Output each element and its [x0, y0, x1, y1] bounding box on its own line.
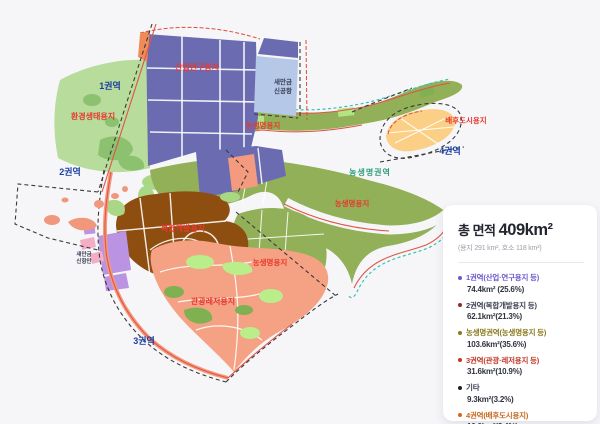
total-area-title-prefix: 총 면적	[458, 223, 499, 238]
legend-value: 31.6km²(10.9%)	[458, 367, 584, 376]
agri-top-label: 농생명용지	[246, 120, 281, 130]
legend-item-zone1: 1권역(산업·연구용지 등) 74.4km² (25.6%)	[458, 272, 584, 294]
complex-label: 복합개발용지	[161, 223, 205, 233]
zone1-bullet-icon	[458, 276, 462, 280]
airport-label-line1: 새만금	[274, 77, 292, 86]
zone3-bullet-icon	[458, 358, 462, 362]
tourism-zone-shape	[151, 240, 329, 372]
total-area-value: 409km²	[499, 221, 553, 239]
etc-bullet-icon	[458, 386, 462, 390]
legend-label: 2권역(복합개발용지 등)	[466, 300, 537, 311]
area-breakdown-note: (용지 291 km², 호소 118 km²)	[458, 243, 584, 253]
legend-label: 기타	[466, 382, 479, 393]
legend-item-etc: 기타 9.3km²(3.2%)	[458, 382, 584, 404]
zone2-label: 2권역	[59, 166, 81, 177]
zone4-label: 4권역	[439, 145, 461, 156]
legend-value: 74.4km² (25.6%)	[458, 285, 584, 294]
agri-zone-label: 농생명권역	[349, 167, 391, 177]
zone4-bullet-icon	[458, 413, 462, 417]
legend-item-zone2: 2권역(복합개발용지 등) 62.1km²(21.3%)	[458, 300, 584, 322]
hinterland-label: 배후도시용지	[445, 115, 486, 125]
industrial-label: 산업연구용지	[175, 62, 219, 72]
port-label-line1: 새만금	[76, 250, 91, 258]
area-summary-card: 총 면적 409km² (용지 291 km², 호소 118 km²) 1권역…	[443, 205, 597, 421]
zone2-bullet-icon	[458, 303, 462, 307]
legend-label: 4권역(배후도시용지)	[466, 410, 528, 421]
legend-label: 1권역(산업·연구용지 등)	[466, 272, 539, 283]
legend-value: 9.3km²(3.2%)	[458, 395, 584, 404]
land-use-map-canvas: 산업연구용지 환경생태용지 농생명용지 배후도시용지 농생명용지 농생명용지 복…	[0, 0, 600, 424]
total-area-title: 총 면적 409km²	[458, 220, 584, 240]
tourism-label: 관광레저용지	[191, 296, 235, 306]
legend-value: 62.1km²(21.3%)	[458, 312, 584, 321]
legend-divider	[458, 262, 584, 263]
industrial-zone-shape	[138, 27, 260, 166]
zone1-label: 1권역	[99, 80, 121, 91]
legend-label: 농생명권역(농생명용지 등)	[466, 327, 546, 338]
legend-item-zone3: 3권역(관광·레저용지 등) 31.6km²(10.9%)	[458, 355, 584, 377]
agri-mid-label: 농생명용지	[335, 198, 370, 208]
legend-item-zone4: 4권역(배후도시용지) 10.0km²(3.4%)	[458, 410, 584, 424]
legend-value: 103.6km²(35.6%)	[458, 340, 584, 349]
agri-bullet-icon	[458, 331, 462, 335]
legend-label: 3권역(관광·레저용지 등)	[466, 355, 539, 366]
port-label-line2: 신항만	[76, 257, 91, 265]
agri-right-label: 농생명용지	[253, 257, 288, 267]
eco-label: 환경생태용지	[71, 111, 115, 121]
legend-item-agri: 농생명권역(농생명용지 등) 103.6km²(35.6%)	[458, 327, 584, 349]
airport-label-line2: 신공항	[274, 86, 292, 95]
zone3-label: 3권역	[133, 335, 155, 346]
